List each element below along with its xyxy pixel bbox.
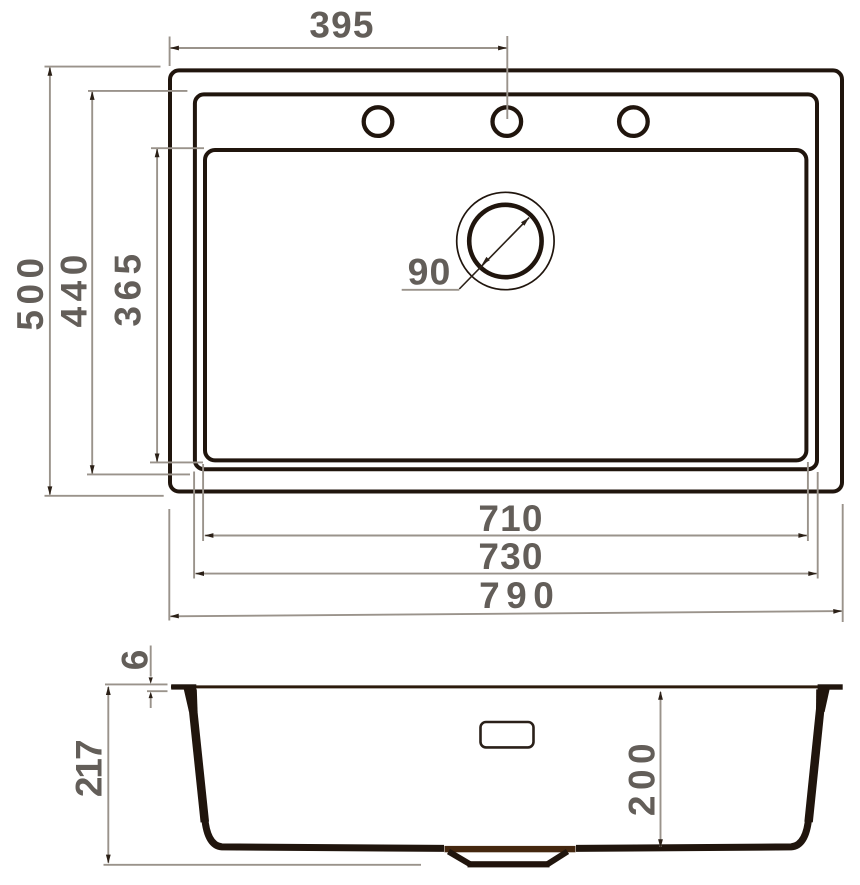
svg-text:217: 217 xyxy=(69,741,110,797)
svg-text:200: 200 xyxy=(621,738,662,816)
svg-text:90: 90 xyxy=(408,251,452,293)
svg-text:395: 395 xyxy=(309,5,374,46)
svg-text:500: 500 xyxy=(10,252,51,330)
svg-text:365: 365 xyxy=(107,248,148,326)
svg-text:440: 440 xyxy=(54,249,95,327)
svg-text:730: 730 xyxy=(478,536,543,577)
svg-text:790: 790 xyxy=(479,575,560,616)
svg-text:710: 710 xyxy=(478,498,543,539)
svg-text:6: 6 xyxy=(115,650,156,671)
